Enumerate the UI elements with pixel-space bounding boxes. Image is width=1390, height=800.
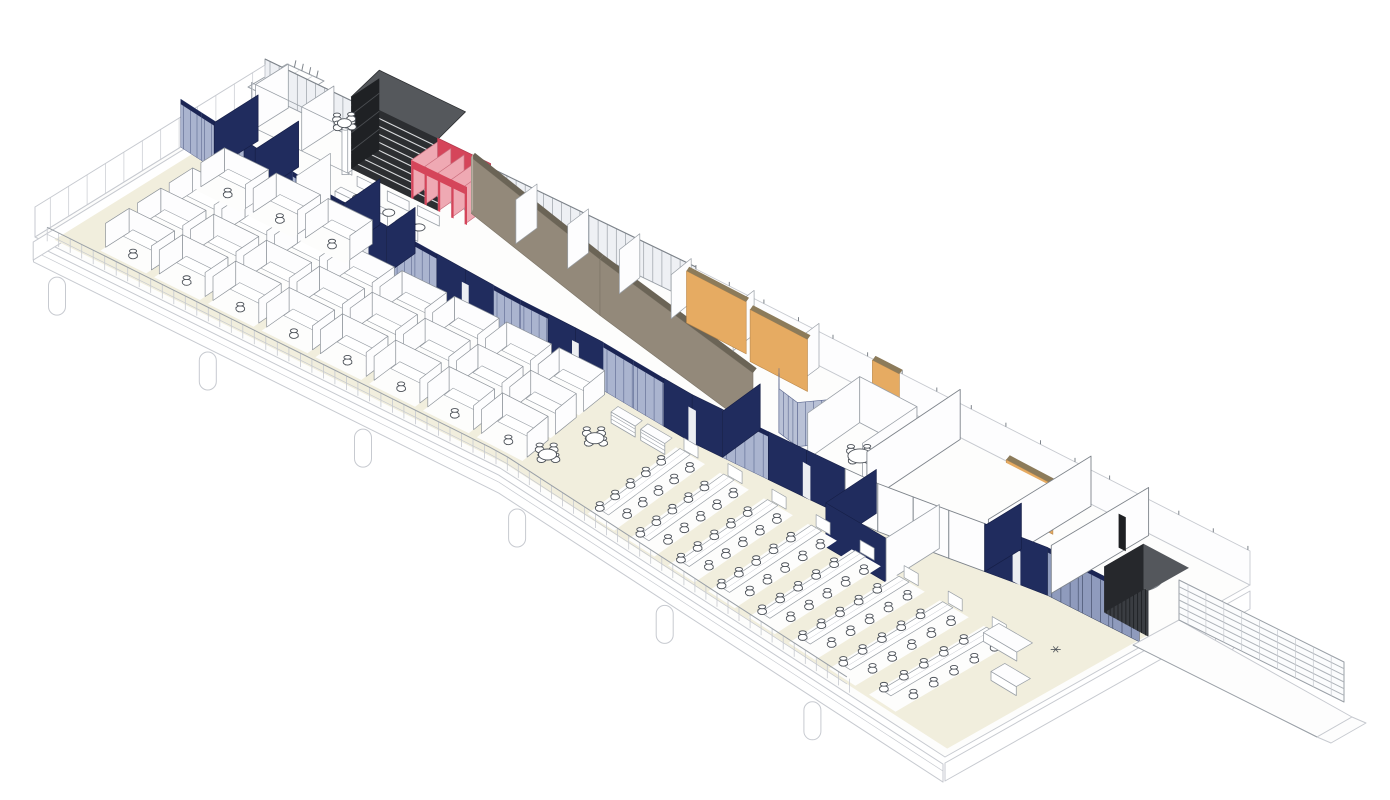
axonometric-floor-plan-drawing <box>0 0 1390 800</box>
axonometric-floor-plan-canvas <box>0 0 1390 800</box>
